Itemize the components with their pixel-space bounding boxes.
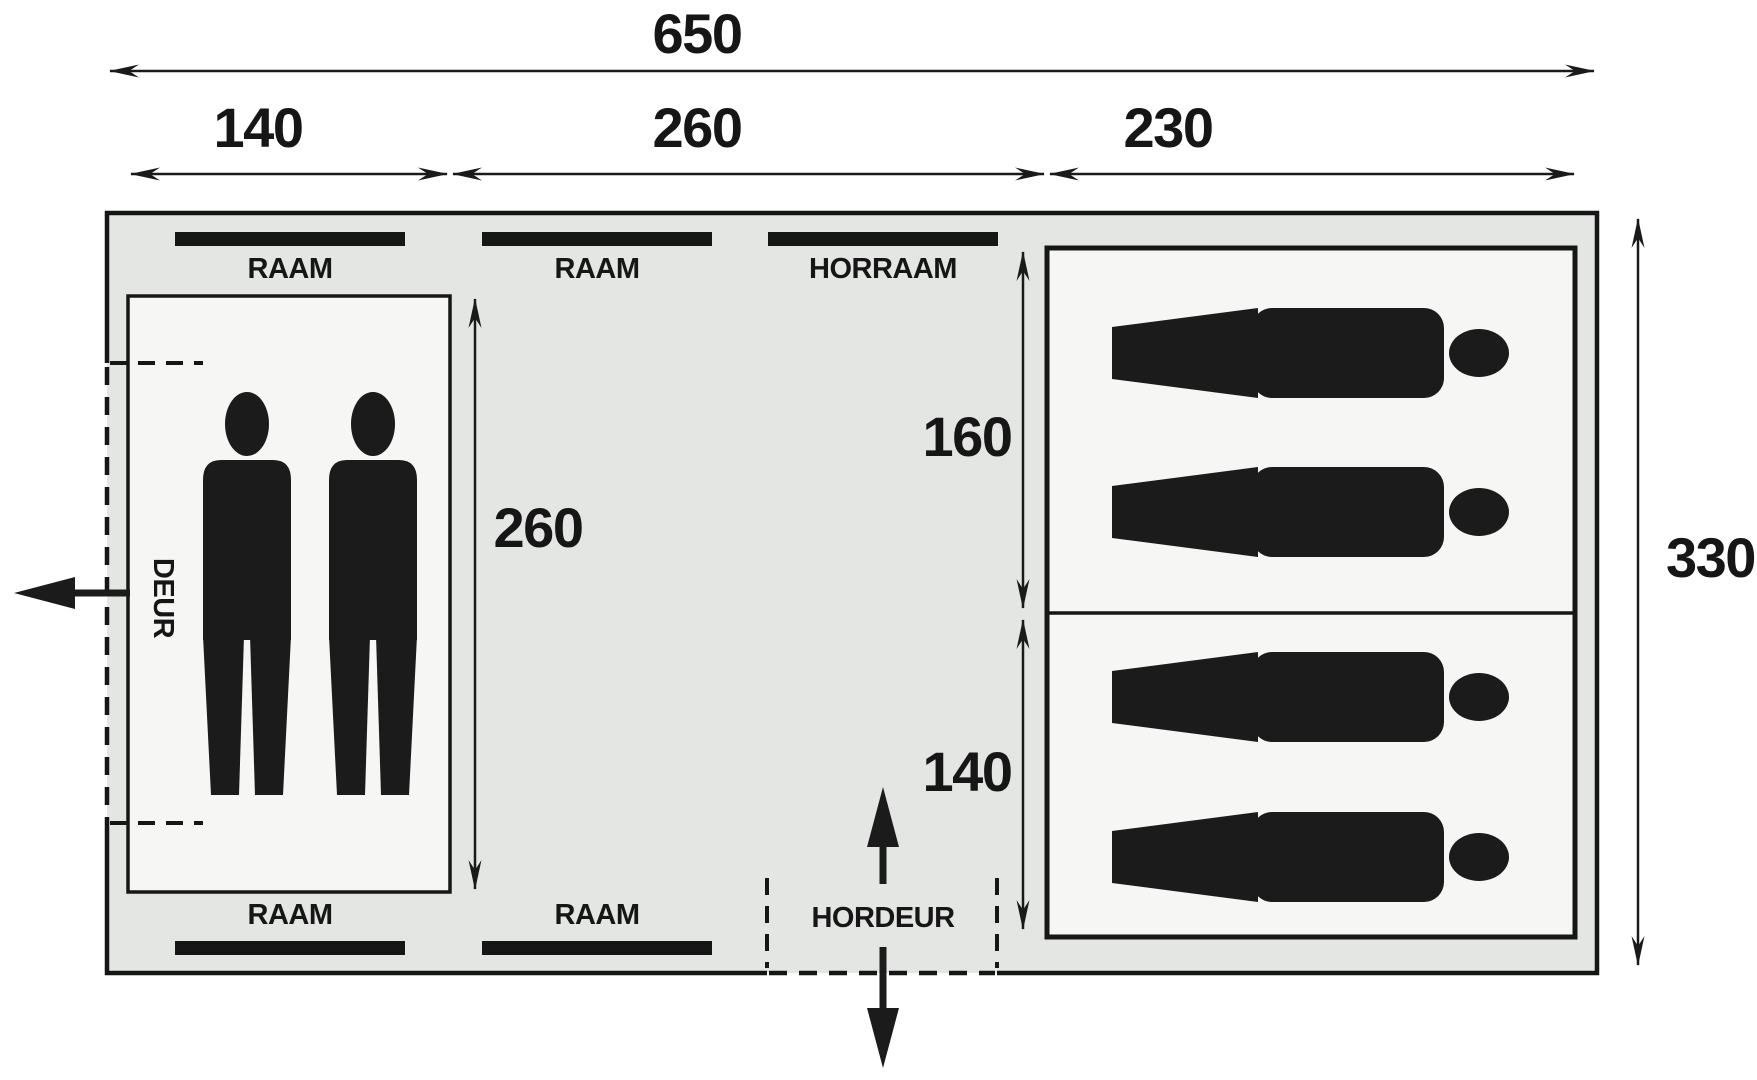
- dimension-sections: 140 260 230: [131, 96, 1574, 174]
- window-bar: [175, 232, 405, 246]
- dim-cabin-bottom-label: 140: [923, 740, 1012, 803]
- mesh-window-bar: [768, 232, 998, 246]
- dim-left-section-label: 140: [214, 96, 303, 159]
- mesh-window-label: HORRAAM: [809, 253, 957, 285]
- windows-top: RAAM RAAM HORRAAM: [175, 232, 998, 285]
- window-label: RAAM: [555, 253, 640, 285]
- window-bar: [482, 941, 712, 955]
- dim-overall-width-label: 650: [653, 2, 742, 65]
- dimension-overall-width: 650: [110, 2, 1594, 71]
- floorplan-svg: 650 140 260 230 RAAM RAAM HORRAAM: [0, 0, 1757, 1080]
- window-label: RAAM: [248, 899, 333, 931]
- dimension-overall-depth: 330: [1638, 219, 1755, 965]
- dim-inner-room-depth-label: 260: [494, 496, 583, 559]
- window-bar: [175, 941, 405, 955]
- side-door-label: DEUR: [147, 558, 179, 639]
- window-label: RAAM: [555, 899, 640, 931]
- dim-right-section-label: 230: [1124, 96, 1213, 159]
- window-bar: [482, 232, 712, 246]
- dim-overall-depth-label: 330: [1666, 526, 1755, 589]
- side-door: DEUR: [14, 558, 179, 639]
- window-label: RAAM: [248, 253, 333, 285]
- tent-floorplan-diagram: 650 140 260 230 RAAM RAAM HORRAAM: [0, 0, 1757, 1080]
- dim-middle-section-label: 260: [653, 96, 742, 159]
- dim-cabin-top-label: 160: [923, 405, 1012, 468]
- mesh-door-label: HORDEUR: [811, 902, 955, 934]
